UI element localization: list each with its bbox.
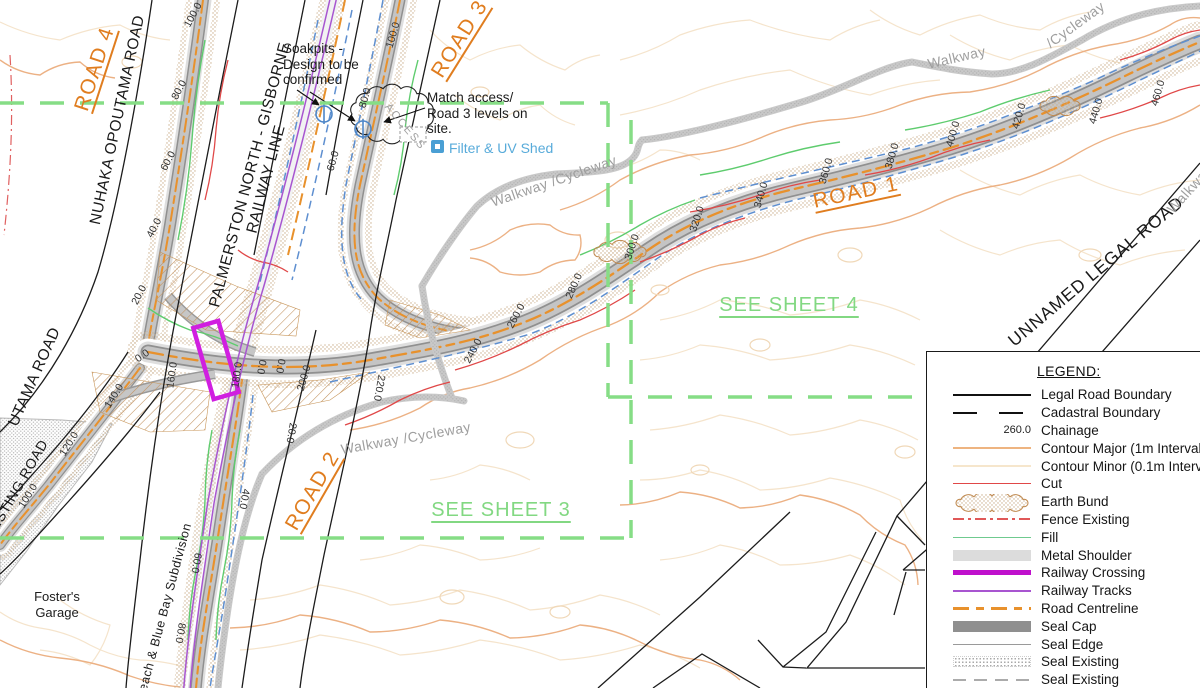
road-centreline-icon [953, 607, 1031, 610]
seal-cap-icon [953, 621, 1031, 632]
legend-row: Seal Existing [927, 671, 1200, 688]
legend-row: Road Centreline [927, 600, 1200, 618]
legend-rows: Legal Road BoundaryCadastral Boundary260… [927, 386, 1200, 688]
contour-minor [620, 20, 880, 60]
legend-row-label: Earth Bund [1041, 494, 1109, 509]
legend-row: Cut [927, 475, 1200, 493]
legend-swatch-road-centreline [953, 601, 1031, 616]
contour-blob [750, 339, 770, 351]
legend-swatch-cadastral [953, 405, 1031, 420]
legend-swatch-earth-bund [953, 494, 1031, 509]
legend-swatch-contour-minor [953, 459, 1031, 474]
legend-row: Railway Crossing [927, 564, 1200, 582]
contour-blob [651, 285, 669, 295]
legend-swatch-seal-existing-area [953, 654, 1031, 669]
fill-icon [953, 537, 1031, 538]
cut-icon [953, 483, 1031, 484]
legend-row-label: Legal Road Boundary [1041, 387, 1172, 402]
legend-row: Seal Existing [927, 653, 1200, 671]
legend-row: Seal Cap [927, 617, 1200, 635]
legend-chainage-value: 260.0 [1003, 424, 1031, 436]
contour-minor [640, 470, 922, 540]
legend-row-label: Railway Tracks [1041, 583, 1132, 598]
fence-existing-line [4, 55, 12, 235]
contour-minor [430, 30, 600, 70]
contour-blob [550, 606, 570, 618]
legend-title: LEGEND: [1037, 363, 1200, 379]
legend-row-label: Seal Cap [1041, 619, 1097, 634]
contour-major [470, 224, 581, 275]
contour-major-icon [953, 447, 1031, 449]
contour-minor [240, 635, 700, 668]
legend-swatch-fill [953, 530, 1031, 545]
legend-row: Metal Shoulder [927, 546, 1200, 564]
legend-row-label: Chainage [1041, 423, 1099, 438]
legend-row-label: Seal Existing [1041, 654, 1119, 669]
legal-road-icon [953, 394, 1031, 396]
legend-swatch-legal-road [953, 387, 1031, 402]
earth-bund-icon [953, 494, 1031, 512]
legend-row: Contour Minor (0.1m Intervals) [927, 457, 1200, 475]
legend-row-label: Seal Edge [1041, 637, 1103, 652]
seal-existing-line-icon [953, 679, 1031, 681]
legend-row-label: Fence Existing [1041, 512, 1130, 527]
contour-minor [940, 230, 1185, 265]
legend-row: Fill [927, 528, 1200, 546]
legend-row-label: Contour Minor (0.1m Intervals) [1041, 459, 1200, 474]
seal-existing-area-icon [953, 656, 1031, 667]
railway-tracks-icon [953, 590, 1031, 592]
railway-crossing-icon [953, 570, 1031, 575]
legend-row: 260.0Chainage [927, 422, 1200, 440]
contour-blob [506, 432, 534, 448]
legend-row: Legal Road Boundary [927, 386, 1200, 404]
contour-minor [0, 612, 200, 672]
legend-row: Fence Existing [927, 511, 1200, 529]
cadastral-icon [953, 412, 1031, 414]
legend-swatch-chainage: 260.0 [953, 423, 1031, 438]
contour-minor [250, 585, 660, 615]
legend-swatch-railway-tracks [953, 583, 1031, 598]
contour-blob [471, 87, 489, 97]
seal-edge-icon [953, 644, 1031, 645]
contour-minor [430, 465, 530, 480]
contour-minor [960, 170, 1200, 195]
legend-swatch-railway-crossing [953, 565, 1031, 580]
contour-minor [0, 22, 170, 40]
civil-plan-canvas: ROAD 1 ROAD 2 ROAD 3 ROAD 4 NUHAKA OPOUT… [0, 0, 1200, 688]
legend-row: Contour Major (1m Intervals) [927, 439, 1200, 457]
contour-minor [455, 95, 575, 125]
contour-blob [895, 446, 915, 458]
contour-major [0, 60, 115, 78]
legend-row-label: Road Centreline [1041, 601, 1139, 616]
contour-minor-icon [953, 465, 1031, 467]
legend-row-label: Railway Crossing [1041, 565, 1145, 580]
legend-row: Railway Tracks [927, 582, 1200, 600]
contour-minor [650, 415, 918, 440]
earth-bund [594, 240, 646, 263]
legend-row-label: Contour Major (1m Intervals) [1041, 441, 1200, 456]
legend-swatch-seal-existing-line [953, 672, 1031, 687]
legend-row: Earth Bund [927, 493, 1200, 511]
legend-row-label: Metal Shoulder [1041, 548, 1132, 563]
contour-blob [122, 56, 142, 68]
legend-row-label: Fill [1041, 530, 1058, 545]
contour-minor [640, 345, 915, 365]
contour-minor [40, 600, 110, 665]
legend-swatch-seal-cap [953, 619, 1031, 634]
legend-row: Cadastral Boundary [927, 404, 1200, 422]
contour-blob [440, 590, 464, 604]
legend-panel: LEGEND: Legal Road BoundaryCadastral Bou… [926, 351, 1200, 688]
legend-swatch-cut [953, 476, 1031, 491]
legend-swatch-contour-major [953, 441, 1031, 456]
legend-row: Seal Edge [927, 635, 1200, 653]
legend-row-label: Cut [1041, 476, 1062, 491]
legend-swatch-seal-edge [953, 637, 1031, 652]
legend-row-label: Seal Existing [1041, 672, 1119, 687]
metal-shoulder-icon [953, 550, 1031, 561]
contour-minor [660, 545, 905, 585]
filter-uv-shed-outline [400, 127, 426, 142]
contour-blob [838, 248, 862, 262]
legend-row-label: Cadastral Boundary [1041, 405, 1160, 420]
legend-swatch-fence [953, 512, 1031, 527]
contour-minor [360, 545, 540, 560]
fence-icon [953, 518, 1031, 520]
contour-minor [660, 300, 920, 320]
shed-icon [431, 140, 444, 153]
legend-swatch-metal-shoulder [953, 548, 1031, 563]
contour-minor [870, 10, 1090, 35]
